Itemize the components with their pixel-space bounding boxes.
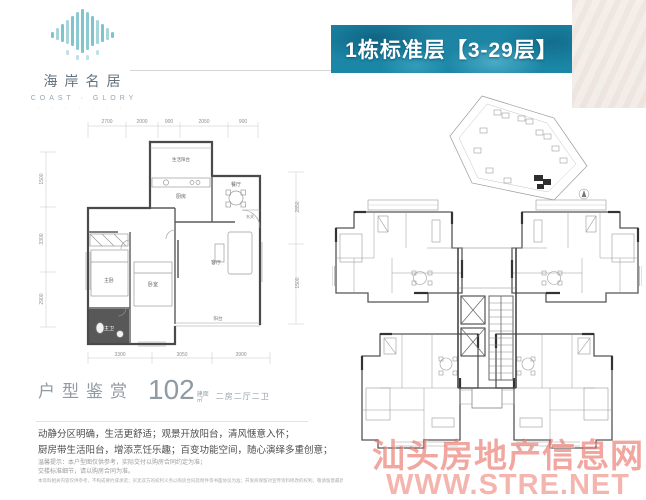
unit-top-left bbox=[332, 200, 462, 302]
section-title: 户型鉴赏 bbox=[38, 377, 134, 404]
dim-top-1: 2700 bbox=[101, 119, 112, 125]
dim-bottom-3: 3900 bbox=[235, 352, 246, 358]
area-unit: 建面 ㎡ bbox=[197, 392, 209, 404]
label-kitchen: 厨房 bbox=[176, 193, 186, 200]
brand-tagline-dots: · · · · · · · bbox=[18, 105, 146, 111]
dim-right-1: 2850 bbox=[295, 201, 301, 212]
label-master-bedroom: 主卧 bbox=[104, 277, 114, 284]
unit-info-block: 户型鉴赏 102 建面 ㎡ 二房二厅二卫 bbox=[38, 376, 328, 404]
site-key-plan bbox=[450, 96, 589, 200]
banner-title: 1栋标准层【3-29层】 bbox=[345, 34, 558, 64]
disclaimer-line-1: 温馨提示：本户型图仅供参考，实际交付以购房合同约定为准； bbox=[38, 459, 343, 468]
floor-banner: 1栋标准层【3-29层】 bbox=[331, 25, 572, 73]
label-balcony: 阳台 bbox=[214, 315, 223, 322]
description-line-2: 厨房带生活阳台，增添烹饪乐趣；百变功能空间，随心演绎多重创意； bbox=[38, 443, 338, 459]
highlighted-building bbox=[534, 175, 551, 189]
watermark-url: WWW.STRE.NET bbox=[372, 471, 644, 499]
label-dining: 餐厅 bbox=[231, 181, 241, 188]
label-service-balcony: 生活阳台 bbox=[172, 156, 190, 163]
dim-bottom-1: 3300 bbox=[114, 352, 125, 358]
area-unit-bottom: ㎡ bbox=[197, 398, 209, 404]
dim-bottom-2: 3050 bbox=[176, 352, 187, 358]
poster-canvas: 海岸名居 COAST · GLORY · · · · · · · 1栋标准层【3… bbox=[0, 0, 646, 500]
brand-name-cn: 海岸名居 bbox=[18, 71, 146, 91]
disclaimer-line-3: 本资料相关内容仅供参考，不构成要约或承诺；买卖双方的权利义务以购房合同及附件等书… bbox=[38, 477, 343, 484]
dim-left-3: 2900 bbox=[39, 293, 45, 304]
dim-top-4: 2050 bbox=[198, 119, 209, 125]
building-floorplate bbox=[332, 88, 642, 468]
disclaimer-line-2: 交楼标准细节，请以购房合同为准。 bbox=[38, 468, 343, 477]
description-line-1: 动静分区明确，生活更舒适；观景开放阳台，清风惬意入怀； bbox=[38, 427, 338, 443]
dim-right-2: 1500 bbox=[295, 277, 301, 288]
brand-logo: 海岸名居 COAST · GLORY · · · · · · · bbox=[18, 6, 146, 111]
unit-floorplan: 2700 2000 900 2050 900 1500 3300 2900 28… bbox=[30, 112, 310, 374]
header-divider bbox=[130, 70, 332, 71]
dim-top-2: 2000 bbox=[136, 119, 147, 125]
dimension-labels: 2700 2000 900 2050 900 1500 3300 2900 28… bbox=[39, 119, 301, 358]
area-value: 102 bbox=[148, 376, 195, 404]
description-block: 动静分区明确，生活更舒适；观景开放阳台，清风惬意入怀； 厨房带生活阳台，增添烹饪… bbox=[38, 427, 338, 459]
info-divider bbox=[36, 421, 308, 422]
label-master-bath: 主卫 bbox=[104, 325, 114, 332]
room-labels: 生活阳台 厨房 餐厅 玄关 客厅 阳台 主卧 卧室 主卫 bbox=[104, 156, 254, 332]
disclaimer-block: 温馨提示：本户型图仅供参考，实际交付以购房合同约定为准； 交楼标准细节，请以购房… bbox=[38, 459, 343, 484]
logo-wave-icon bbox=[27, 6, 137, 64]
layout-text: 二房二厅二卫 bbox=[216, 391, 270, 404]
unit-top-right bbox=[512, 200, 642, 302]
dim-top-3: 900 bbox=[165, 119, 174, 125]
label-bedroom: 卧室 bbox=[148, 281, 158, 288]
dim-left-2: 3300 bbox=[39, 233, 45, 244]
dim-top-5: 900 bbox=[239, 119, 248, 125]
brand-name-en: COAST · GLORY bbox=[18, 95, 146, 102]
dim-left-1: 1500 bbox=[39, 173, 45, 184]
label-living: 客厅 bbox=[211, 259, 221, 266]
label-entry: 玄关 bbox=[246, 213, 254, 219]
